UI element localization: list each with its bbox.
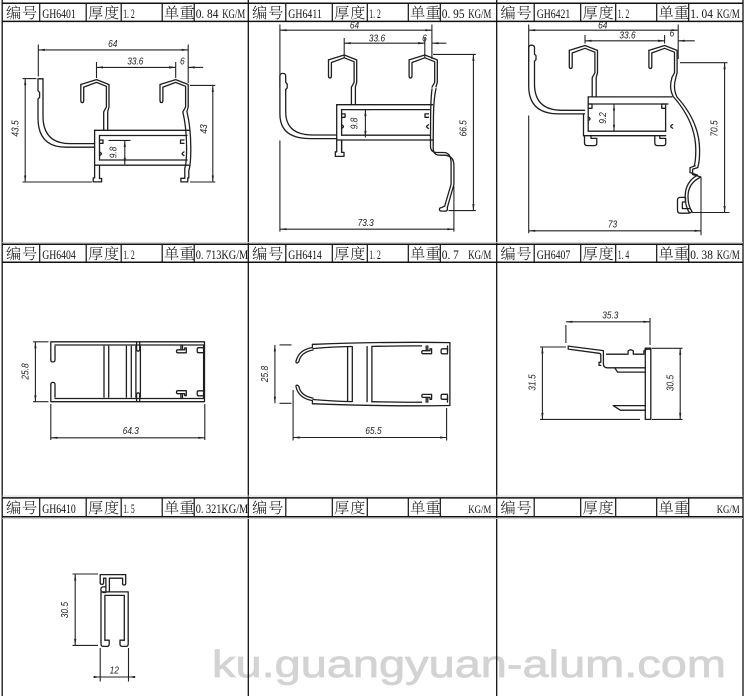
svg-text:12: 12 — [110, 665, 120, 676]
svg-text:1. 2: 1. 2 — [123, 7, 135, 21]
svg-text:31.5: 31.5 — [528, 374, 539, 391]
svg-text:KG/M: KG/M — [717, 7, 740, 21]
svg-text:70.5: 70.5 — [710, 120, 721, 137]
svg-text:64: 64 — [598, 20, 608, 31]
svg-text:35.3: 35.3 — [602, 310, 619, 321]
svg-text:GH6411: GH6411 — [288, 7, 322, 21]
svg-text:33.6: 33.6 — [127, 56, 144, 67]
svg-text:64.3: 64.3 — [123, 426, 140, 437]
svg-text:GH6401: GH6401 — [42, 7, 75, 21]
svg-text:GH6410: GH6410 — [42, 502, 75, 516]
svg-text:9.2: 9.2 — [598, 112, 609, 124]
svg-text:ku.guangyuan-alum.com: ku.guangyuan-alum.com — [212, 644, 726, 686]
svg-text:GH6407: GH6407 — [537, 248, 571, 262]
svg-text:KG/M: KG/M — [468, 248, 491, 262]
svg-text:1. 2: 1. 2 — [123, 248, 135, 262]
svg-text:33.6: 33.6 — [619, 30, 636, 41]
svg-text:6: 6 — [422, 33, 427, 44]
svg-text:6: 6 — [670, 29, 675, 40]
svg-text:1. 2: 1. 2 — [618, 7, 630, 21]
svg-text:9.8: 9.8 — [349, 117, 360, 129]
svg-text:KG/M: KG/M — [468, 504, 491, 516]
svg-text:1. 5: 1. 5 — [123, 502, 135, 516]
svg-text:73: 73 — [608, 220, 618, 231]
svg-text:1. 2: 1. 2 — [369, 7, 381, 21]
svg-text:0. 95: 0. 95 — [442, 7, 465, 21]
svg-text:25.8: 25.8 — [260, 365, 271, 383]
svg-text:43: 43 — [199, 124, 210, 134]
svg-text:1. 4: 1. 4 — [618, 248, 630, 262]
svg-text:GH6414: GH6414 — [288, 248, 322, 262]
svg-text:66.5: 66.5 — [459, 120, 470, 137]
svg-text:0. 84: 0. 84 — [196, 7, 219, 21]
svg-text:64: 64 — [108, 39, 118, 50]
svg-text:0. 713KG/M: 0. 713KG/M — [196, 248, 249, 262]
svg-text:0. 321KG/M: 0. 321KG/M — [196, 502, 249, 516]
svg-text:43.5: 43.5 — [11, 120, 22, 137]
svg-text:KG/M: KG/M — [717, 248, 740, 262]
svg-text:KG/M: KG/M — [468, 7, 491, 21]
svg-text:1. 04: 1. 04 — [690, 7, 713, 21]
svg-text:25.8: 25.8 — [21, 363, 32, 381]
svg-text:1. 2: 1. 2 — [369, 248, 381, 262]
svg-text:65.5: 65.5 — [365, 426, 382, 437]
svg-text:0. 7: 0. 7 — [442, 248, 459, 262]
svg-text:KG/M: KG/M — [717, 504, 740, 516]
svg-text:9.8: 9.8 — [108, 146, 119, 158]
svg-text:30.5: 30.5 — [60, 601, 71, 618]
svg-text:64: 64 — [350, 21, 360, 32]
svg-text:0. 38: 0. 38 — [690, 248, 713, 262]
svg-text:33.6: 33.6 — [369, 33, 386, 44]
svg-text:73.3: 73.3 — [358, 218, 375, 229]
svg-text:30.5: 30.5 — [665, 374, 676, 391]
svg-text:GH6421: GH6421 — [537, 7, 571, 21]
svg-text:GH6404: GH6404 — [42, 248, 76, 262]
svg-text:KG/M: KG/M — [222, 7, 245, 21]
svg-text:6: 6 — [180, 56, 185, 67]
